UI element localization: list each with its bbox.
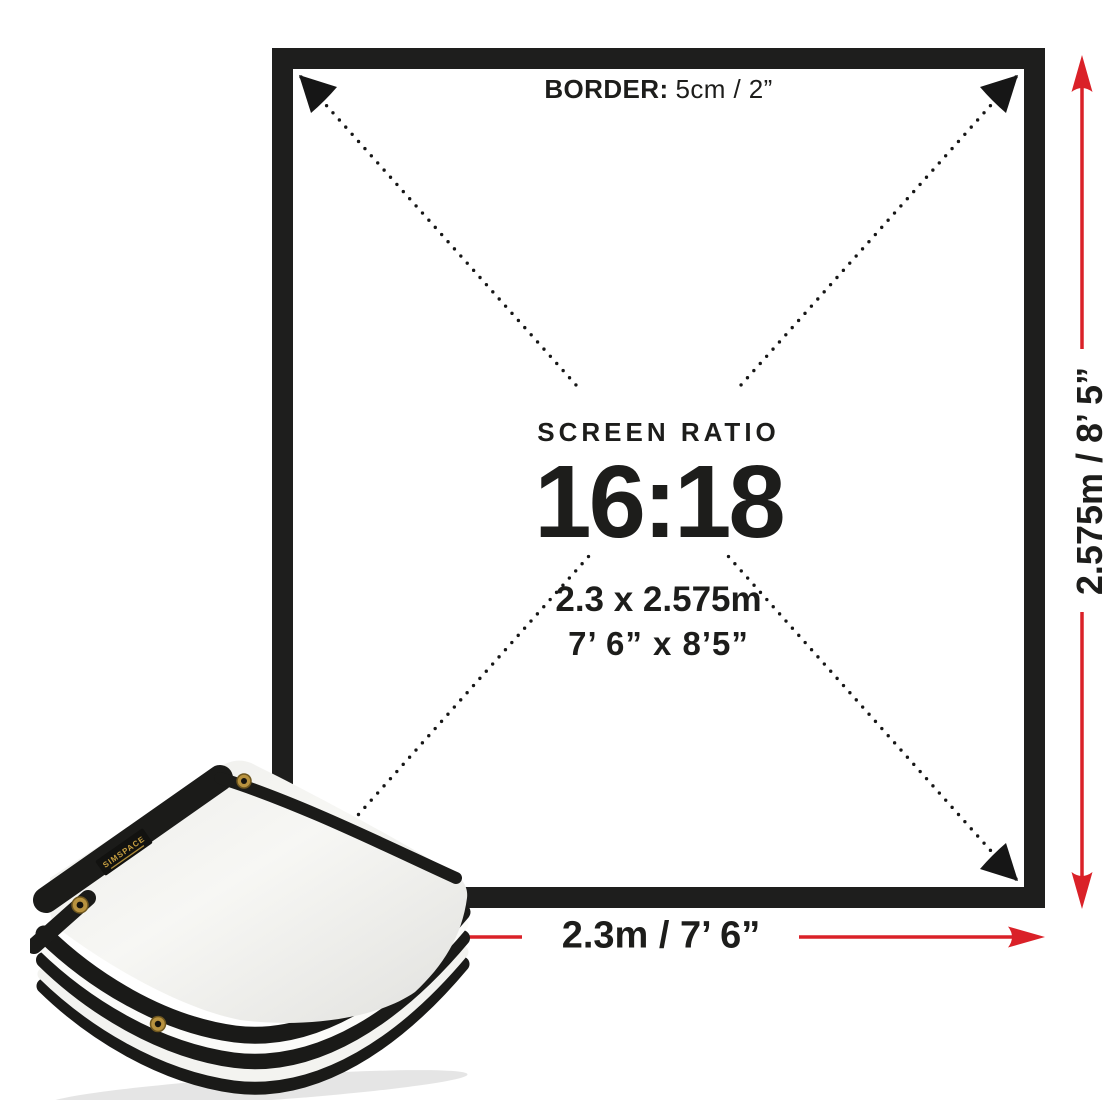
height-dimension-label: 2.575m / 8’ 5” (1069, 367, 1111, 595)
screen-ratio-block: SCREEN RATIO 16:18 2.3 x 2.575m 7’ 6” x … (293, 417, 1024, 663)
border-size-note: BORDER:5cm / 2” (293, 74, 1024, 105)
grommet-top-icon (237, 774, 251, 788)
screen-size-metric: 2.3 x 2.575m (555, 580, 761, 620)
right-arrow-icon (1008, 927, 1045, 948)
screen-dimension-diagram: BORDER:5cm / 2” SCREEN RATIO 16:18 2.3 x… (0, 0, 1120, 1120)
folded-screen-product-photo: SIMSPACE (30, 748, 478, 1100)
grommet-left-icon (72, 897, 88, 913)
diagonal-dotted-line-top-left (301, 77, 576, 385)
down-arrow-icon (1072, 872, 1093, 909)
border-note-label: BORDER: (544, 74, 668, 104)
screen-size-imperial: 7’ 6” x 8’5” (568, 625, 749, 663)
grommet-bottom-icon (151, 1017, 166, 1032)
border-note-value: 5cm / 2” (676, 74, 773, 104)
up-arrow-icon (1072, 55, 1093, 92)
diagonal-dotted-line-top-right (741, 77, 1016, 385)
width-dimension-label: 2.3m / 7’ 6” (562, 915, 761, 958)
corner-arrow-bottom-right-icon (980, 843, 1018, 881)
screen-ratio-value: 16:18 (534, 450, 782, 553)
